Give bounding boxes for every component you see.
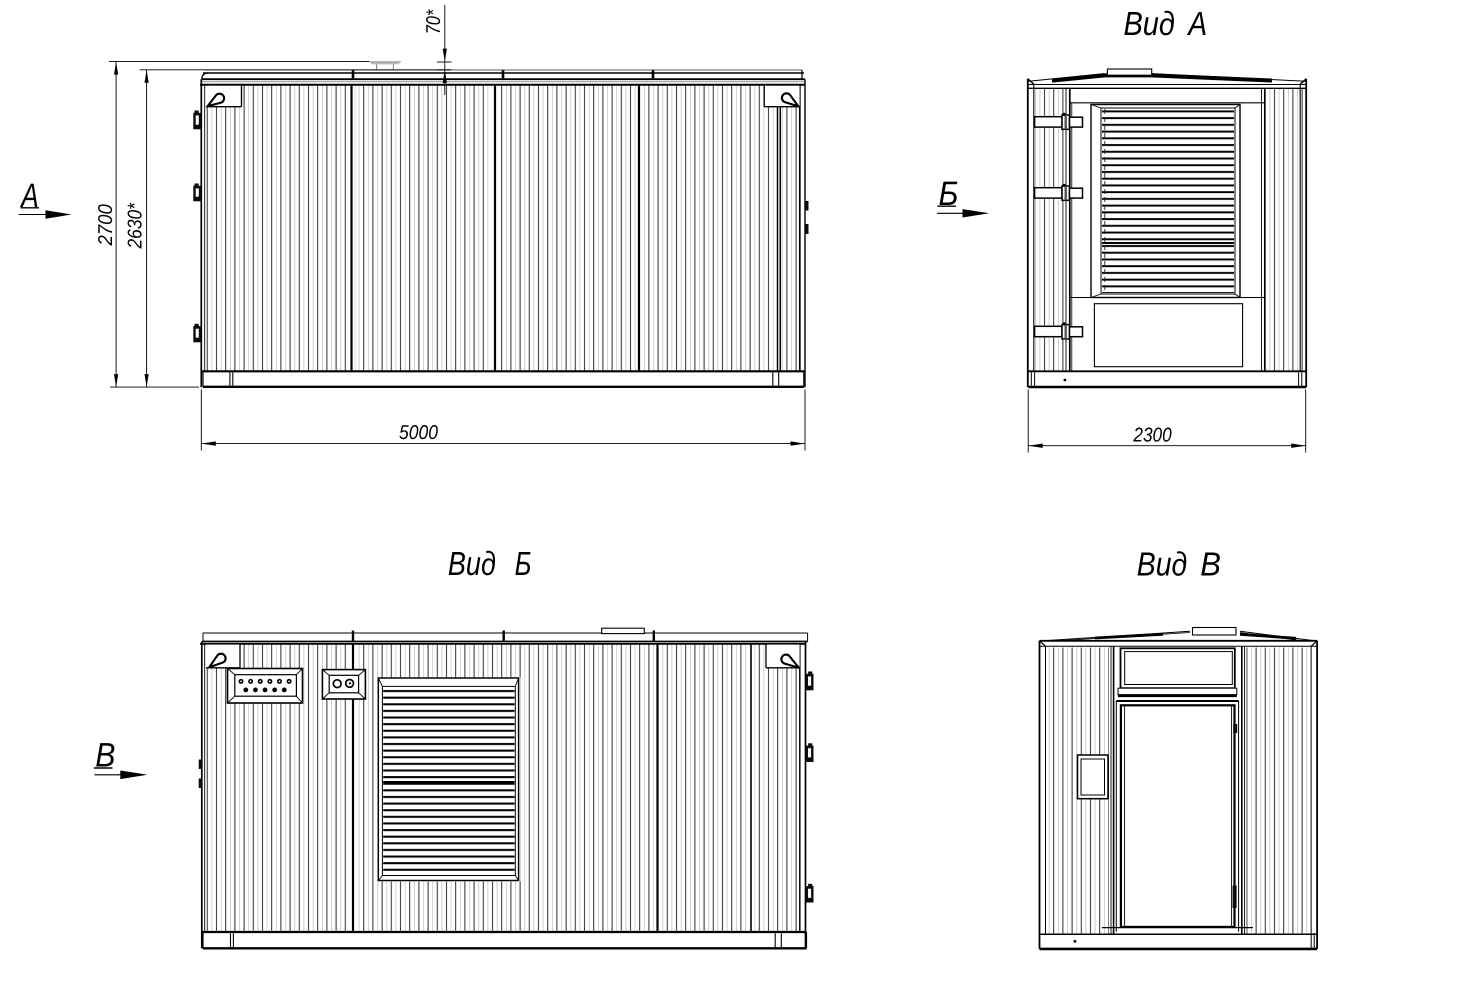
svg-text:2630*: 2630* [125,202,147,249]
svg-text:Вид: Вид [448,546,496,583]
svg-text:2300: 2300 [1133,425,1172,447]
svg-text:Вид: Вид [1124,6,1175,43]
svg-text:А: А [1187,6,1207,43]
svg-text:Вид: Вид [1137,546,1187,583]
svg-text:2700: 2700 [95,204,117,246]
svg-text:А: А [20,177,39,215]
svg-text:Б: Б [939,175,959,213]
svg-text:70*: 70* [423,9,445,35]
svg-text:В: В [1200,546,1221,583]
svg-text:Б: Б [515,546,532,583]
svg-text:5000: 5000 [399,422,438,444]
